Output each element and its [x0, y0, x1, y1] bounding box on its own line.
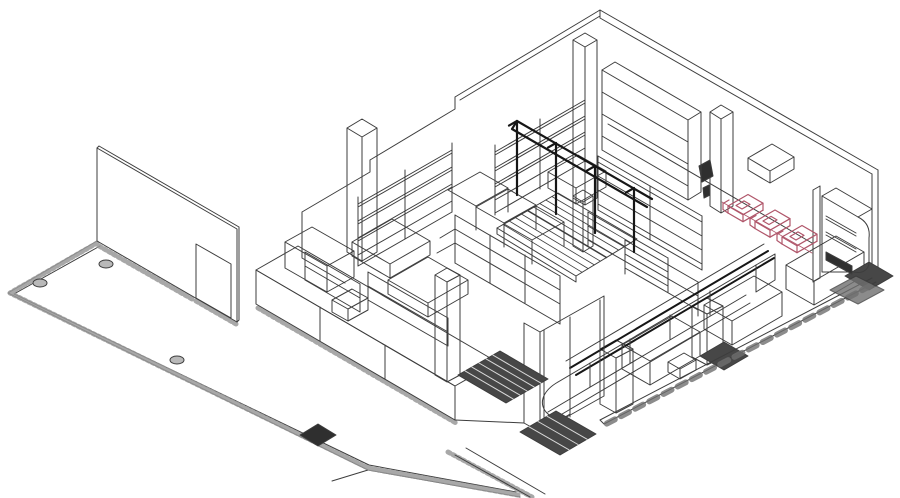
sidewalk-hatch-band [10, 243, 532, 497]
wall-shelving [358, 93, 606, 266]
store-isometric-drawing [0, 0, 900, 498]
drawing-figure [0, 0, 900, 498]
produce-rails [509, 121, 652, 252]
display-tables [332, 144, 794, 321]
bollards [33, 260, 184, 364]
door-wall [97, 146, 239, 322]
drawing-root [8, 10, 893, 497]
sidewalk-apron [8, 241, 545, 497]
diamond-floor-mat [300, 424, 336, 446]
produce-display [448, 121, 652, 282]
serve-over-case [542, 244, 775, 420]
entry-mats [458, 351, 596, 455]
beverage-cooler [813, 186, 884, 304]
shopping-carts [722, 195, 817, 254]
vestibule [458, 296, 604, 455]
